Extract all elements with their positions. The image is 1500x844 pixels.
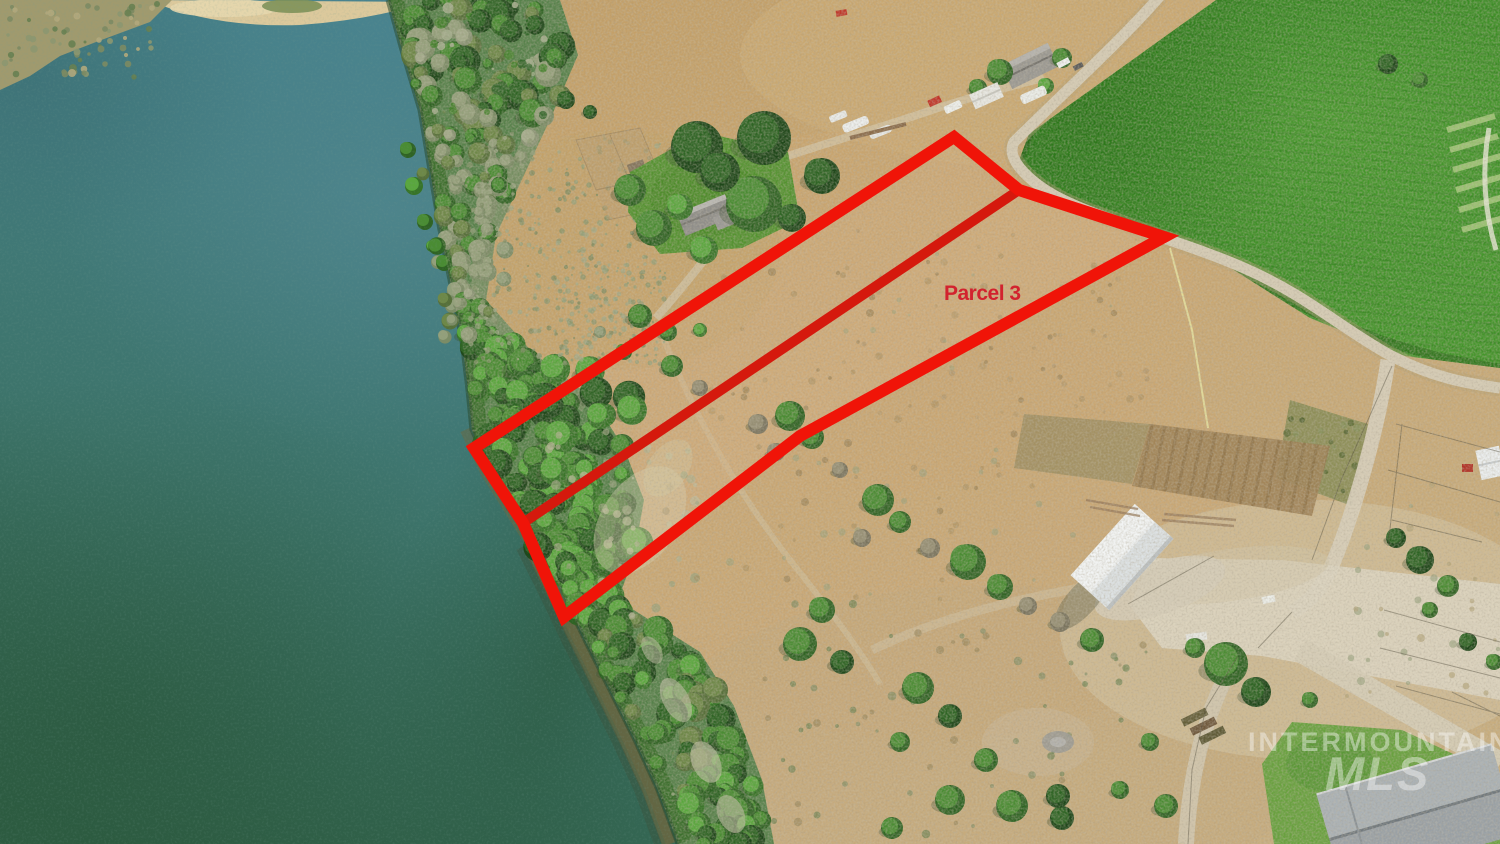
svg-text:MLS: MLS <box>1325 747 1430 800</box>
svg-text:Parcel 3: Parcel 3 <box>944 282 1021 305</box>
